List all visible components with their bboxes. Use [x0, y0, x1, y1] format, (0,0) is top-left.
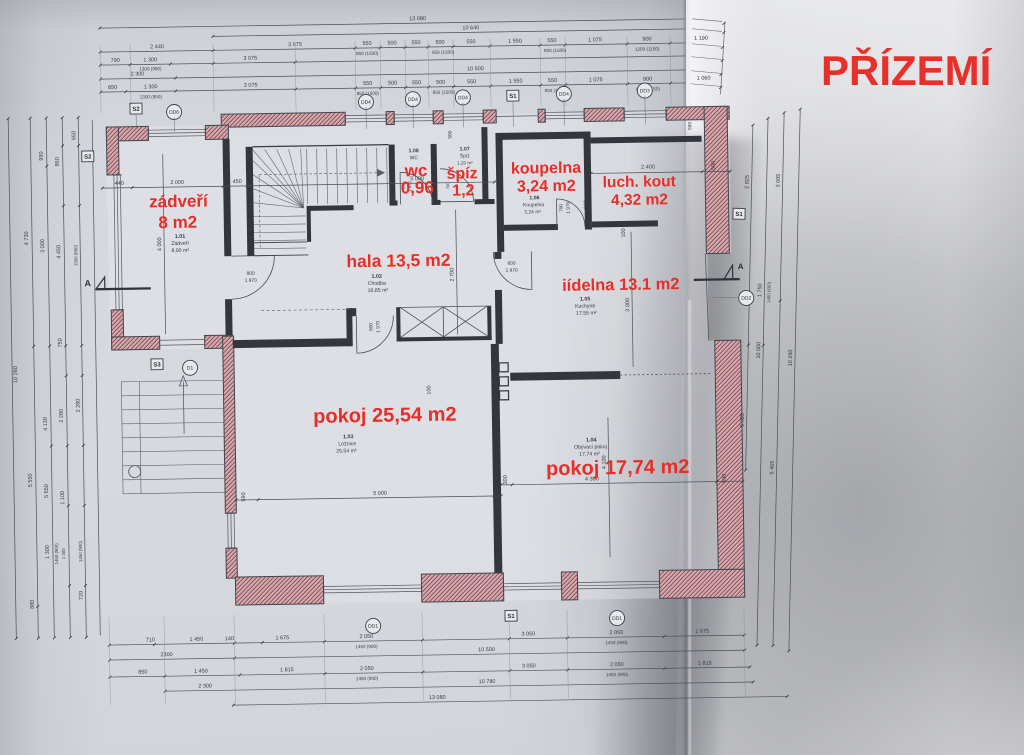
svg-text:Ložnice: Ložnice [338, 441, 356, 447]
svg-text:1 815: 1 815 [698, 661, 712, 667]
svg-text:990: 990 [39, 151, 45, 160]
svg-text:550: 550 [548, 78, 557, 84]
svg-text:550: 550 [412, 80, 421, 86]
svg-text:2 280: 2 280 [59, 409, 65, 423]
svg-text:10 280: 10 280 [13, 366, 19, 383]
svg-text:2 050: 2 050 [359, 634, 373, 640]
svg-text:1450 (900): 1450 (900) [356, 676, 379, 681]
svg-text:590: 590 [722, 474, 728, 483]
svg-text:1450 (900): 1450 (900) [78, 540, 83, 562]
svg-text:1 750: 1 750 [757, 283, 763, 297]
svg-text:750: 750 [58, 338, 64, 347]
svg-text:10 500: 10 500 [467, 66, 484, 72]
svg-text:A: A [738, 262, 744, 271]
svg-text:1 675: 1 675 [275, 635, 289, 641]
svg-text:DD4: DD4 [458, 95, 468, 101]
svg-text:650: 650 [108, 85, 117, 91]
svg-text:500: 500 [447, 130, 453, 138]
svg-text:1 970: 1 970 [375, 320, 381, 332]
svg-text:2 440: 2 440 [150, 44, 164, 50]
svg-text:2 050: 2 050 [609, 630, 623, 636]
svg-text:590: 590 [687, 122, 693, 130]
svg-text:3 075: 3 075 [244, 83, 258, 89]
svg-text:WC: WC [410, 155, 419, 161]
svg-text:špíz: špíz [446, 165, 477, 182]
svg-text:800: 800 [507, 261, 515, 267]
svg-text:800: 800 [368, 323, 374, 331]
svg-text:DD6: DD6 [169, 110, 179, 116]
svg-text:8,00 m²: 8,00 m² [171, 248, 189, 254]
svg-text:17,74 m²: 17,74 m² [579, 451, 600, 457]
svg-text:4 450: 4 450 [56, 245, 62, 259]
svg-text:300: 300 [494, 484, 500, 493]
svg-text:1 675: 1 675 [695, 629, 709, 635]
svg-text:1 815: 1 815 [280, 667, 294, 673]
svg-text:zádveří: zádveří [149, 191, 209, 211]
svg-text:3 075: 3 075 [243, 56, 257, 62]
svg-text:140: 140 [225, 636, 234, 642]
svg-text:1 060: 1 060 [697, 76, 711, 82]
svg-text:1300 (950): 1300 (950) [140, 94, 163, 99]
svg-text:4 730: 4 730 [24, 231, 30, 245]
svg-text:2 000: 2 000 [170, 180, 184, 186]
svg-text:550: 550 [363, 81, 372, 87]
svg-text:1,20 m²: 1,20 m² [457, 160, 473, 165]
svg-text:1.06: 1.06 [529, 195, 539, 201]
svg-text:2 700: 2 700 [450, 268, 456, 282]
svg-text:DD1: DD1 [612, 616, 622, 622]
svg-text:koupelna: koupelna [511, 160, 582, 178]
svg-text:DD4: DD4 [559, 92, 569, 98]
svg-text:17,55 m²: 17,55 m² [576, 310, 597, 316]
svg-text:D1: D1 [187, 366, 194, 372]
svg-text:1 300: 1 300 [143, 57, 157, 63]
svg-text:550: 550 [547, 38, 556, 44]
svg-text:1450 (900): 1450 (900) [355, 644, 378, 649]
svg-text:S1: S1 [507, 614, 515, 620]
svg-text:4 130: 4 130 [43, 417, 49, 431]
svg-text:pokoj 17,74 m2: pokoj 17,74 m2 [546, 456, 690, 480]
svg-text:Kuchyně: Kuchyně [575, 303, 595, 309]
svg-text:16,85 m²: 16,85 m² [368, 288, 389, 294]
svg-text:100: 100 [621, 228, 627, 237]
svg-text:1.07: 1.07 [460, 146, 470, 152]
svg-text:S1: S1 [735, 212, 743, 218]
svg-text:2300: 2300 [160, 652, 172, 658]
svg-text:PŘÍZEMÍ: PŘÍZEMÍ [821, 46, 993, 94]
svg-text:10 780: 10 780 [479, 679, 496, 685]
svg-text:550: 550 [467, 79, 476, 85]
svg-text:5 550: 5 550 [28, 473, 34, 487]
svg-text:850 (1500): 850 (1500) [544, 48, 567, 53]
svg-text:590: 590 [241, 492, 247, 501]
svg-text:1450 (900): 1450 (900) [605, 640, 628, 645]
svg-text:25,54 m²: 25,54 m² [336, 448, 357, 454]
svg-text:790: 790 [111, 58, 120, 64]
svg-text:DD1: DD1 [368, 624, 378, 630]
svg-text:1 450: 1 450 [194, 669, 208, 675]
svg-text:5 550: 5 550 [44, 484, 50, 498]
svg-text:1 300: 1 300 [45, 545, 51, 559]
svg-text:5 325: 5 325 [740, 413, 746, 427]
svg-text:S2: S2 [84, 154, 92, 160]
svg-text:500: 500 [436, 80, 445, 86]
svg-text:500: 500 [388, 80, 397, 86]
svg-text:300: 300 [503, 475, 509, 484]
svg-text:1 970: 1 970 [245, 278, 257, 284]
svg-text:1.04: 1.04 [586, 437, 597, 443]
svg-text:4,32 m2: 4,32 m2 [611, 191, 668, 209]
svg-text:A: A [84, 278, 91, 288]
svg-text:850: 850 [138, 669, 147, 675]
svg-text:2 280: 2 280 [76, 399, 82, 413]
svg-text:590: 590 [711, 161, 717, 170]
svg-text:S1: S1 [509, 94, 517, 100]
svg-text:2 825: 2 825 [745, 175, 751, 189]
svg-text:1450 (900): 1450 (900) [606, 672, 629, 677]
svg-text:1.08: 1.08 [409, 148, 419, 154]
svg-text:1.02: 1.02 [371, 274, 382, 280]
svg-text:DD2: DD2 [741, 296, 751, 302]
svg-text:1 550: 1 550 [508, 39, 522, 45]
svg-text:10 280: 10 280 [788, 349, 794, 366]
svg-text:0,96: 0,96 [401, 178, 434, 198]
svg-text:1450 (900): 1450 (900) [54, 543, 59, 565]
svg-text:850 (1500): 850 (1500) [432, 50, 455, 55]
svg-text:500: 500 [435, 40, 444, 46]
svg-text:1.03: 1.03 [343, 434, 354, 440]
svg-text:800: 800 [247, 271, 255, 277]
svg-text:850: 850 [55, 157, 61, 166]
svg-text:900: 900 [643, 76, 652, 82]
svg-text:1300 (850): 1300 (850) [73, 244, 78, 266]
svg-text:13 080: 13 080 [429, 695, 446, 701]
svg-text:1 190: 1 190 [694, 36, 708, 42]
svg-text:5 465: 5 465 [770, 461, 776, 475]
svg-text:luch. kout: luch. kout [603, 173, 676, 191]
svg-text:5 000: 5 000 [373, 491, 387, 497]
svg-text:1.05: 1.05 [580, 296, 591, 302]
svg-text:440: 440 [115, 181, 124, 187]
svg-text:2 400: 2 400 [641, 164, 655, 170]
svg-text:hala 13,5 m2: hala 13,5 m2 [346, 250, 451, 272]
svg-text:Chodba: Chodba [368, 281, 386, 287]
svg-text:1 970: 1 970 [566, 201, 572, 213]
svg-text:720: 720 [79, 591, 85, 600]
svg-text:850 (1500): 850 (1500) [356, 51, 379, 56]
svg-text:1 970: 1 970 [506, 268, 518, 274]
svg-text:1 300: 1 300 [144, 84, 158, 90]
svg-text:900: 900 [642, 36, 651, 42]
svg-text:450: 450 [233, 179, 242, 185]
svg-text:500: 500 [387, 40, 396, 46]
svg-text:10 640: 10 640 [462, 25, 479, 31]
svg-text:2 300: 2 300 [131, 71, 145, 77]
svg-text:1200 (1150): 1200 (1150) [635, 46, 660, 51]
svg-text:650: 650 [71, 131, 77, 140]
svg-text:700: 700 [559, 204, 565, 212]
svg-text:100: 100 [426, 385, 432, 394]
svg-text:3,24 m²: 3,24 m² [524, 209, 541, 215]
svg-text:2 050: 2 050 [610, 662, 624, 668]
svg-text:3 050: 3 050 [522, 663, 536, 669]
svg-text:S2: S2 [132, 107, 140, 113]
svg-text:10 000: 10 000 [756, 342, 762, 359]
svg-text:13 080: 13 080 [409, 16, 426, 22]
svg-text:1 075: 1 075 [589, 77, 603, 83]
svg-text:DD3: DD3 [640, 88, 650, 94]
svg-text:8 m2: 8 m2 [158, 213, 197, 233]
svg-text:3,24 m2: 3,24 m2 [517, 178, 576, 196]
svg-text:1 300: 1 300 [61, 548, 66, 560]
svg-text:1 450: 1 450 [189, 637, 203, 643]
svg-text:iídelna 13.1 m2: iídelna 13.1 m2 [562, 275, 680, 295]
svg-text:S3: S3 [153, 362, 161, 368]
svg-text:3 000: 3 000 [40, 239, 46, 253]
svg-text:1450 (600): 1450 (600) [766, 281, 771, 303]
svg-text:850 (1500): 850 (1500) [433, 90, 456, 95]
svg-text:DD4: DD4 [408, 97, 418, 103]
svg-text:550: 550 [362, 41, 371, 47]
svg-text:1 075: 1 075 [588, 37, 602, 43]
svg-text:4 000: 4 000 [157, 237, 163, 251]
svg-text:Koupelna: Koupelna [523, 202, 544, 208]
svg-text:3 065: 3 065 [776, 174, 782, 188]
svg-text:3 000: 3 000 [625, 298, 631, 312]
svg-text:Obývací pokoj: Obývací pokoj [574, 444, 607, 451]
svg-text:DD4: DD4 [361, 100, 371, 106]
svg-text:550: 550 [466, 39, 475, 45]
svg-text:10 500: 10 500 [478, 647, 495, 653]
svg-text:pokoj 25,54 m2: pokoj 25,54 m2 [313, 404, 457, 428]
svg-text:Zádveří: Zádveří [171, 241, 189, 247]
svg-text:Špíž: Špíž [460, 152, 471, 159]
svg-text:1,2: 1,2 [452, 182, 475, 199]
svg-text:2 300: 2 300 [198, 683, 212, 689]
svg-text:1 550: 1 550 [509, 79, 523, 85]
svg-text:2 050: 2 050 [360, 666, 374, 672]
svg-text:3 050: 3 050 [521, 631, 535, 637]
svg-text:300: 300 [584, 200, 590, 209]
svg-text:710: 710 [146, 637, 155, 643]
svg-text:550: 550 [411, 40, 420, 46]
svg-text:880: 880 [30, 600, 36, 609]
svg-text:1 100: 1 100 [60, 491, 66, 505]
svg-text:1.01: 1.01 [175, 234, 186, 240]
